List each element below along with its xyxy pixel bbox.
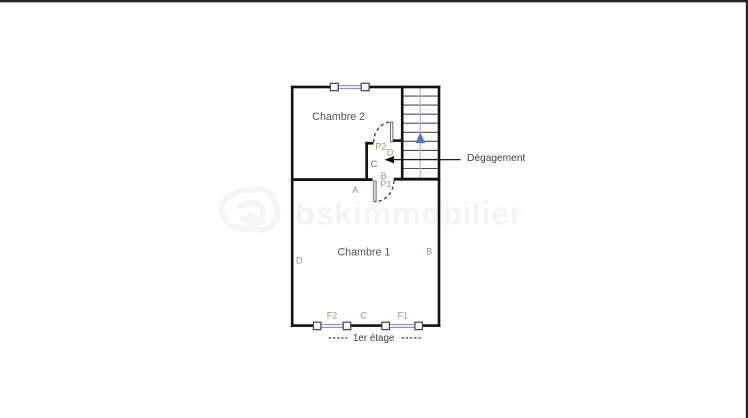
svg-text:Chambre 2: Chambre 2 [312,111,365,123]
svg-text:Dégagement: Dégagement [467,153,526,164]
svg-text:A: A [352,185,358,195]
svg-text:C: C [371,159,378,170]
svg-text:1er étage: 1er étage [353,333,395,344]
svg-text:C: C [360,311,367,321]
svg-text:bskimmobilier: bskimmobilier [295,196,523,232]
svg-text:D: D [296,255,303,265]
svg-text:F1: F1 [398,311,409,321]
svg-text:Chambre 1: Chambre 1 [337,247,390,259]
svg-text:D: D [387,148,394,158]
svg-text:B: B [426,246,432,256]
svg-text:F2: F2 [327,311,338,321]
svg-text:P2: P2 [375,141,386,151]
svg-text:P1: P1 [380,179,391,189]
